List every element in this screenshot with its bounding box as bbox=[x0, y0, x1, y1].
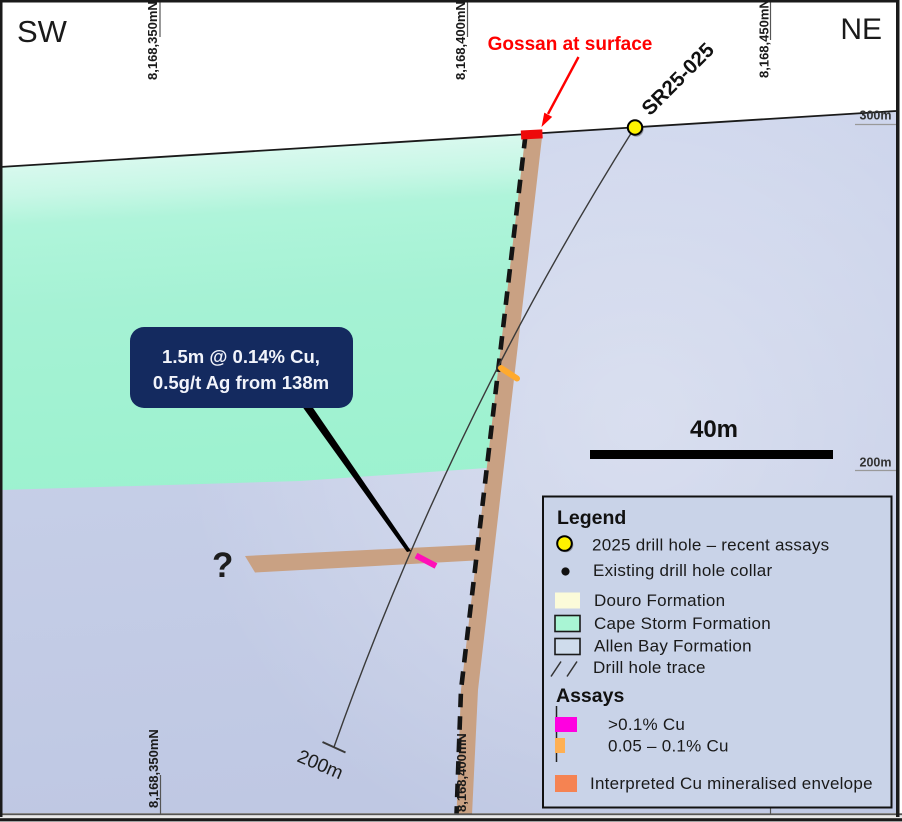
svg-text:40m: 40m bbox=[690, 416, 738, 443]
svg-text:Allen Bay Formation: Allen Bay Formation bbox=[594, 637, 752, 656]
svg-text:>0.1% Cu: >0.1% Cu bbox=[608, 715, 685, 734]
svg-text:?: ? bbox=[212, 546, 233, 585]
svg-text:Interpreted Cu mineralised env: Interpreted Cu mineralised envelope bbox=[590, 774, 873, 793]
svg-text:Gossan at surface: Gossan at surface bbox=[488, 34, 653, 55]
svg-text:Assays: Assays bbox=[556, 685, 624, 707]
svg-text:8,168,450mN: 8,168,450mN bbox=[757, 0, 772, 78]
svg-text:8,168,400mN: 8,168,400mN bbox=[454, 733, 469, 812]
svg-text:NE: NE bbox=[840, 13, 882, 46]
svg-text:8,168,350mN: 8,168,350mN bbox=[145, 1, 160, 80]
svg-text:8,168,350mN: 8,168,350mN bbox=[146, 729, 161, 808]
svg-text:0.05 – 0.1% Cu: 0.05 – 0.1% Cu bbox=[608, 737, 729, 756]
svg-text:Douro Formation: Douro Formation bbox=[594, 591, 725, 610]
svg-text:Drill hole trace: Drill hole trace bbox=[593, 658, 706, 677]
svg-text:SW: SW bbox=[17, 14, 68, 49]
svg-text:Legend: Legend bbox=[557, 507, 626, 529]
svg-text:200m: 200m bbox=[860, 456, 892, 470]
svg-text:0.5g/t Ag from 138m: 0.5g/t Ag from 138m bbox=[153, 372, 329, 393]
svg-text:Existing drill hole collar: Existing drill hole collar bbox=[593, 561, 772, 580]
svg-text:1.5m @ 0.14% Cu,: 1.5m @ 0.14% Cu, bbox=[162, 346, 320, 367]
svg-text:2025 drill hole – recent assay: 2025 drill hole – recent assays bbox=[592, 536, 829, 555]
svg-text:300m: 300m bbox=[860, 109, 892, 123]
svg-text:8,168,400mN: 8,168,400mN bbox=[453, 1, 468, 80]
svg-text:Cape Storm Formation: Cape Storm Formation bbox=[594, 614, 771, 633]
